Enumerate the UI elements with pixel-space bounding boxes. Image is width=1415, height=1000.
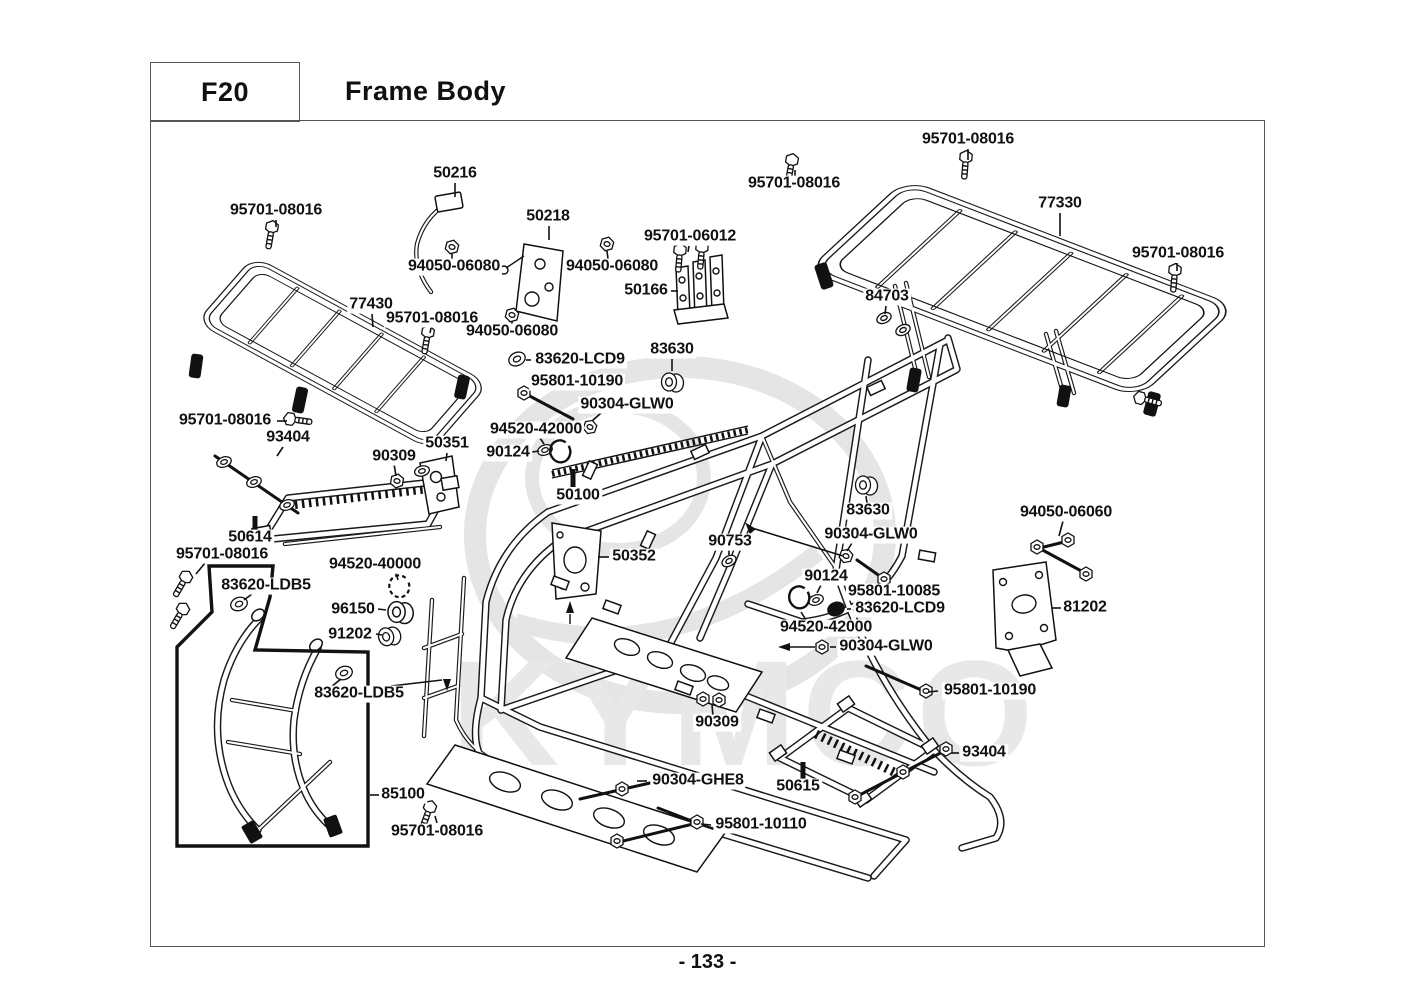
leader-line [446,453,447,461]
leader-line [752,528,843,556]
catalog-page: F20 Frame Body [0,0,1415,1000]
leader-line [885,306,886,314]
leader-line [394,464,396,476]
leader-line [928,691,938,692]
leader-line [331,679,341,687]
leader-line [532,451,539,452]
leader-line [701,824,711,825]
leader-line [376,634,382,635]
kymco-watermark-logo: KYMCO [451,367,1039,797]
leader-line [866,496,867,503]
leader-line [196,563,205,574]
leader-line [1059,521,1063,536]
leader-line [817,585,821,593]
leader-line [430,328,431,333]
leader-line [688,246,689,252]
leader-line [391,680,442,686]
leader-line [712,705,713,716]
leader-line [378,609,386,610]
frame-body-exploded-diagram: KYMCO [0,0,1415,1000]
leader-line [277,447,283,456]
leader-line [396,573,398,580]
leader-line [435,816,437,823]
leader-line [607,251,608,259]
leader-line [372,314,373,327]
leader-line [244,594,252,600]
